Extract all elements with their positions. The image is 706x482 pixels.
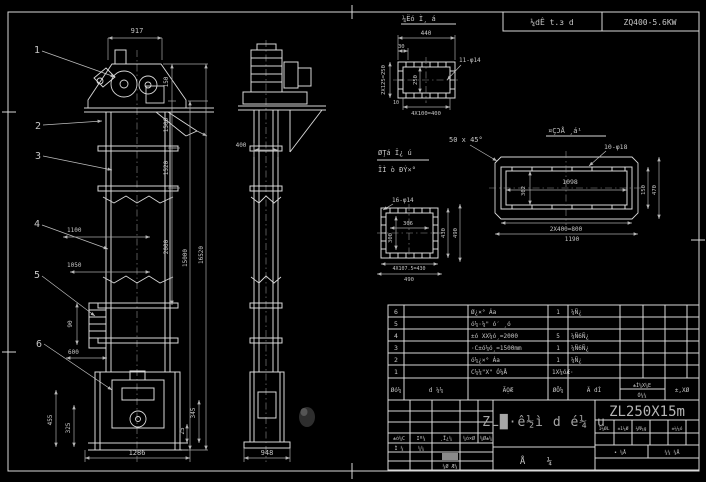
bom-mat: ¼Ñ¿ [571,309,582,316]
bom-no: 3 [394,344,398,352]
dim-1098: 1098 [562,178,578,186]
dim-150-r: 150 [641,185,647,195]
bom-name: ·C±ó¼ó¸=1500mm [471,345,522,352]
balloon-4: 4 [34,219,40,230]
stamp-highlight [442,453,458,460]
rev-mark-label: ±ó¼C [393,435,405,442]
balloon-6: 6 [36,339,42,350]
bom-name: ±ó XX¼ó¸=2000 [471,333,518,340]
dim-948: 948 [261,449,274,457]
bom-header-code: d ¼¼ [429,387,444,394]
detail-a-label: ¼Ëó Ì¸ á [402,14,436,23]
motor-spec: ZQ400-5.6KW [624,18,677,27]
bom-qty: 1X¼óÆ· [552,369,574,376]
bom-no: 5 [394,320,398,328]
bom-name: C¼¼"X" Ó¼Å [471,369,508,376]
dim-1520: 1520 [163,160,170,175]
dim-490-r: 490 [453,228,459,238]
rev-zone-label: ¸Ï¿¼ [440,435,452,442]
dim-30: 30 [398,44,405,50]
bom-header-no: Øó¼ [391,387,402,394]
dim-470: 470 [652,185,658,195]
dim-440: 440 [421,30,432,37]
rev-count-label: Iº¼ [416,436,425,442]
dim-250: 250 [413,75,419,85]
bom-name: ó¼¿×° Áa [471,357,500,364]
dim-400: 400 [236,142,247,149]
balloon-5: 5 [34,270,40,281]
chamfer-note: 50 x 45° [449,136,483,144]
dim-2x125: 2X125=250 [381,65,387,95]
bom-name: ó¼·¼" ó′ ¸ó [471,321,511,328]
detail-b-label-1: ØŢá Ï¿ ú [378,148,412,157]
bom-no: 6 [394,308,398,316]
dim-4x100: 4X100=400 [411,111,441,117]
balloon-1: 1 [34,45,40,56]
drawing-title: ZL█·ê½ì d é¼ u [482,413,606,430]
dim-325: 325 [65,422,72,433]
dim-1500: 1500 [163,117,170,132]
dim-25: 25 [179,427,186,435]
holes-11-d14: 11-φ14 [459,57,481,64]
cad-drawing-canvas: ¼dÊ t.з d ZQ400-5.6KW 1 2 3 4 5 6 [0,0,706,482]
dim-306: 306 [403,221,413,227]
dim-10: 10 [393,100,399,106]
bom-no: 1 [394,368,398,376]
drawing-type-label: Å ¼ [520,455,560,467]
bom-mat: ¼Ñ6Ñ¿ [571,333,589,340]
sheet-total-label: • ¼Å [614,449,626,456]
design-label: Ì ¼ [394,445,403,452]
bom-name: Ø¿×° Áa [471,309,497,316]
bom-header-qty: ØÔ¼ [553,387,564,394]
holes-10-d18: 10-φ18 [604,143,628,151]
bom-mat: ¼Ñ6Ñ¿ [571,345,589,352]
approve-label: ¼Ø Æ¼ [442,463,457,470]
drawing-number: ZL250X15m [609,404,685,420]
dim-16520: 16520 [198,246,205,264]
dim-90: 90 [67,320,74,328]
dim-1100: 1100 [67,227,82,234]
scale-label: ¼Ñ¼g [636,425,647,432]
top-note: ¼dÊ t.з d [530,16,574,27]
dim-4x107: 4X107.5=430 [392,266,425,272]
bom-header-name: ÃỌ̈Æ [503,387,514,394]
bom-header-remark: ±,XØ [675,387,690,394]
dim-2x400: 2X400=800 [550,226,583,233]
dim-600: 600 [68,349,79,356]
rev-doc-label: ¼ó×Ø [463,435,475,442]
dim-2000: 2000 [163,239,170,254]
dim-455: 455 [47,414,54,425]
bom-no: 4 [394,332,398,340]
balloon-3: 3 [35,151,41,162]
bom-qty: 1 [556,357,560,364]
dim-1286: 1286 [129,449,146,457]
holes-16-d14: 16-φ14 [392,197,414,204]
bom-qty: 1 [556,309,560,316]
bom-qty: 5 [556,333,560,340]
bom-header-mat: Ä dÌ [587,387,602,394]
ratio-label: ±¼¼ó [672,425,683,432]
bom-header-total: Ó¼¼ [637,392,646,399]
dim-1190: 1190 [565,236,580,243]
balloon-2: 2 [35,121,41,132]
dim-1050: 1050 [67,262,82,269]
detail-c-label: ¤ÇϽÅ ¸á¹ [548,126,582,135]
sheet-num-label: ¼¼ ¼Å [664,449,679,456]
dim-302: 302 [521,186,527,196]
rev-date-label: ¼Ø±¼ [480,435,492,442]
weight-label: ±1¼Ø [618,425,629,432]
dim-15000: 15000 [182,249,189,267]
dim-490-b: 490 [404,277,414,283]
dim-917: 917 [131,27,144,35]
dim-430: 430 [441,228,447,238]
bom-mat: ¼Ñ¿ [571,357,582,364]
smudge-highlight [301,408,308,416]
stage-mark-label: 1¼ØL [599,425,610,432]
dim-300: 300 [388,233,394,243]
bom-qty: 1 [556,345,560,352]
dim-150: 150 [163,76,170,87]
dim-345: 345 [190,407,197,418]
bom-header-weight: ±Ì¼X¼E [633,382,651,389]
bom-no: 2 [394,356,398,364]
detail-b-label-2: ÏÌ ò ÐÝ×° [378,165,416,174]
sign-label: ¼¼ [418,446,424,452]
